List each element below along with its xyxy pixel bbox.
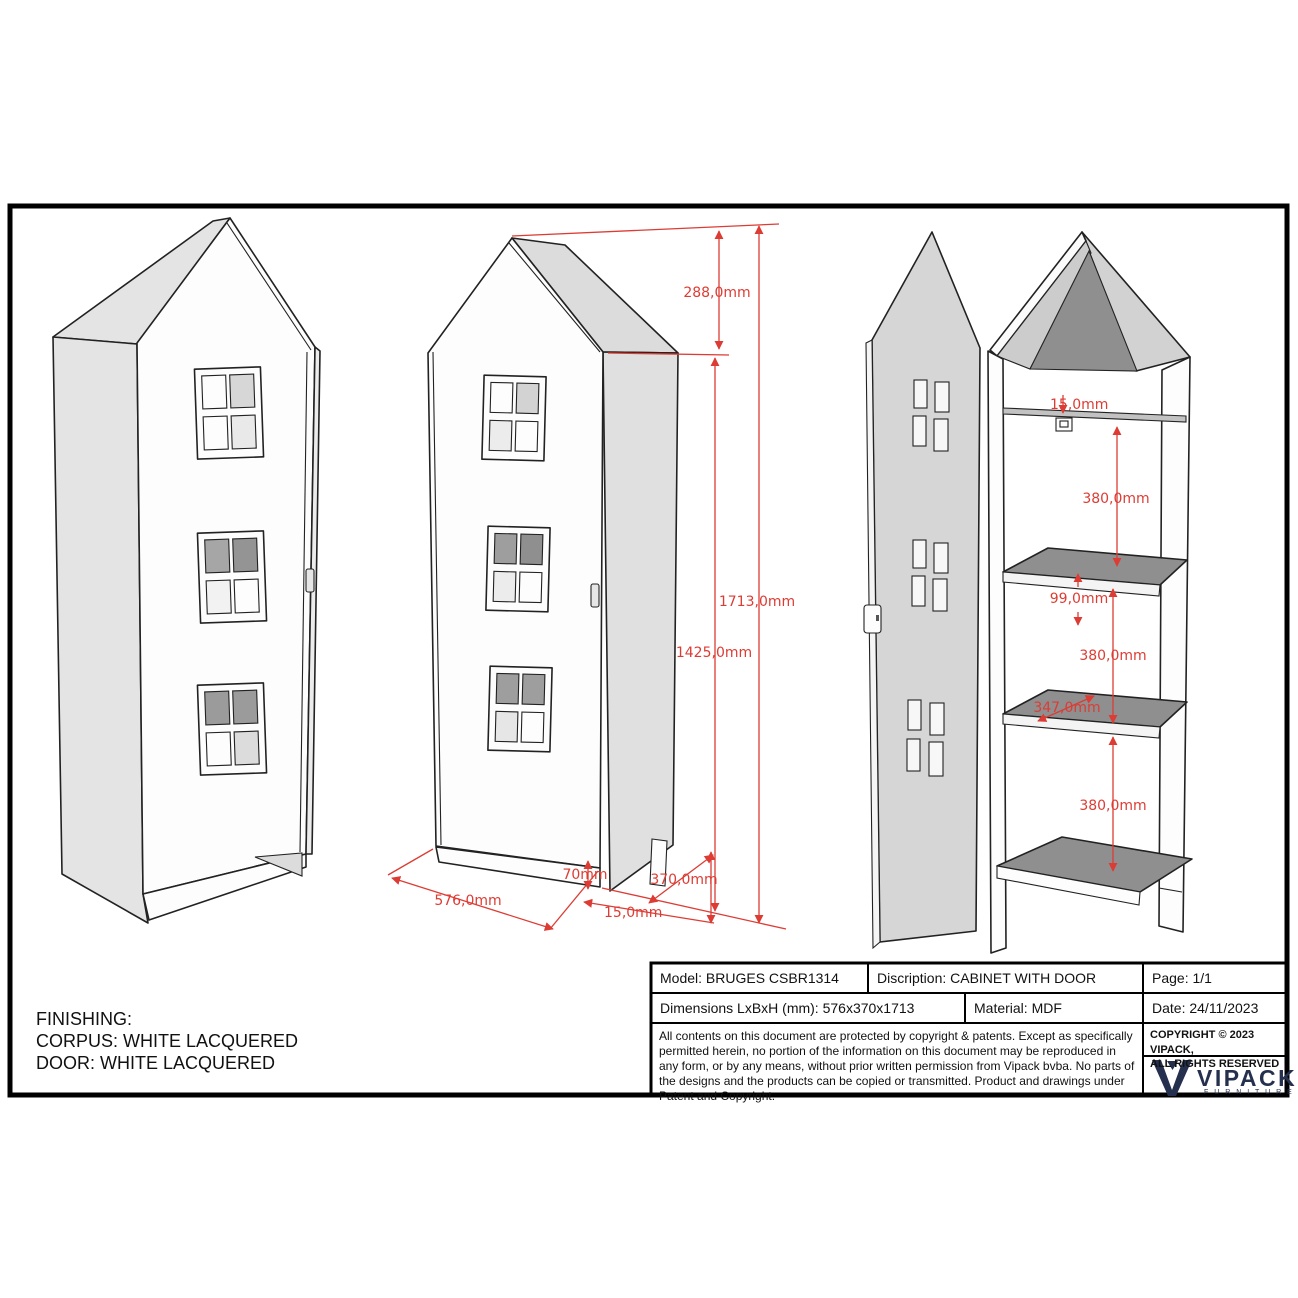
window-pane — [929, 742, 943, 776]
window-pane — [519, 572, 542, 603]
copyright-notice: COPYRIGHT © 2023 VIPACK, ALL RIGHTS RESE… — [1143, 1024, 1290, 1058]
window-pane — [234, 731, 259, 765]
window-group — [482, 375, 546, 461]
date-cell: Date: 24/11/2023 — [1143, 993, 1296, 1023]
window-pane — [206, 580, 231, 614]
dim-shelf-depth-label: 347,0mm — [1033, 700, 1100, 716]
window-pane — [489, 420, 512, 451]
window-pane — [908, 700, 921, 730]
window-pane — [206, 732, 231, 766]
dim-body-height-label: 1425,0mm — [676, 645, 752, 661]
finishing-door: DOOR: WHITE LACQUERED — [36, 1052, 298, 1074]
finishing-notes: FINISHING: CORPUS: WHITE LACQUERED DOOR:… — [36, 1008, 298, 1074]
window-pane — [934, 419, 948, 451]
view-open-cabinet: 15,0mm 380,0mm 99,0mm 380,0mm 347,0mm 38… — [864, 232, 1192, 953]
dimension-lines: 15,0mm 380,0mm 99,0mm 380,0mm 347,0mm 38… — [1033, 395, 1149, 871]
dim-space1-label: 380,0mm — [1082, 491, 1149, 507]
window-pane — [205, 691, 230, 725]
model-cell: Model: BRUGES CSBR1314 — [651, 963, 876, 993]
door-handle — [591, 584, 599, 607]
dimensions-cell: Dimensions LxBxH (mm): 576x370x1713 — [651, 993, 973, 1023]
window-pane — [495, 711, 518, 742]
extension-line — [388, 849, 433, 875]
dim-top-panel-label: 15,0mm — [1050, 397, 1108, 413]
door-handle — [306, 569, 314, 592]
door-lock-pin — [876, 615, 879, 621]
window-pane — [205, 539, 230, 573]
dim-roof-height-label: 288,0mm — [683, 285, 750, 301]
window-pane — [933, 579, 947, 611]
window-pane — [493, 571, 516, 602]
dim-bottom-gap-label: 15,0mm — [604, 905, 662, 921]
window-pane — [914, 380, 927, 408]
dim-width-label: 576,0mm — [434, 893, 501, 909]
dim-back-gap-label: 99,0mm — [1050, 591, 1108, 607]
window-pane — [515, 421, 538, 452]
window-group — [486, 526, 550, 612]
page-cell: Page: 1/1 — [1143, 963, 1296, 993]
window-pane — [231, 415, 256, 449]
technical-drawing-canvas: 288,0mm 1713,0mm 1425,0mm 576,0mm 70mm 1… — [0, 0, 1298, 1298]
finishing-title: FINISHING: — [36, 1008, 298, 1030]
right-side-wall — [1159, 357, 1190, 932]
window-pane — [520, 534, 543, 565]
window-pane — [202, 375, 227, 409]
material-cell: Material: MDF — [965, 993, 1151, 1023]
window-group — [488, 666, 552, 752]
vipack-logo-subtext: F U R N I T U R E — [1204, 1089, 1294, 1096]
window-pane — [934, 543, 948, 573]
description-cell: Discription: CABINET WITH DOOR — [868, 963, 1151, 993]
window-pane — [522, 674, 545, 705]
window-pane — [490, 382, 513, 413]
dim-space2-label: 380,0mm — [1079, 648, 1146, 664]
window-pane — [913, 416, 926, 446]
window-pane — [516, 383, 539, 414]
dim-plinth-label: 70mm — [562, 867, 607, 883]
window-pane — [496, 673, 519, 704]
window-group — [197, 531, 266, 623]
open-door-panel — [872, 232, 980, 942]
window-pane — [234, 579, 259, 613]
window-pane — [203, 416, 228, 450]
window-pane — [494, 533, 517, 564]
finishing-corpus: CORPUS: WHITE LACQUERED — [36, 1030, 298, 1052]
window-pane — [233, 538, 258, 572]
view-closed-dimensioned: 288,0mm 1713,0mm 1425,0mm 576,0mm 70mm 1… — [388, 224, 795, 929]
window-pane — [907, 739, 920, 771]
dim-space3-label: 380,0mm — [1079, 798, 1146, 814]
side-panel — [603, 352, 678, 891]
window-group — [197, 683, 266, 775]
extension-line — [512, 224, 779, 236]
copyright-paragraph: All contents on this document are protec… — [651, 1024, 1145, 1097]
drawing-sheet: 288,0mm 1713,0mm 1425,0mm 576,0mm 70mm 1… — [0, 0, 1298, 1298]
dim-total-height-label: 1713,0mm — [719, 594, 795, 610]
window-pane — [913, 540, 926, 568]
window-pane — [230, 374, 255, 408]
window-pane — [521, 712, 544, 743]
window-pane — [930, 703, 944, 735]
window-group — [194, 367, 263, 459]
window-pane — [935, 382, 949, 412]
side-panel — [53, 337, 148, 923]
shelf-catch — [1056, 418, 1072, 431]
view-closed-front-left — [53, 218, 320, 923]
window-pane — [912, 576, 925, 606]
window-pane — [233, 690, 258, 724]
dim-depth-label: 370,0mm — [650, 872, 717, 888]
